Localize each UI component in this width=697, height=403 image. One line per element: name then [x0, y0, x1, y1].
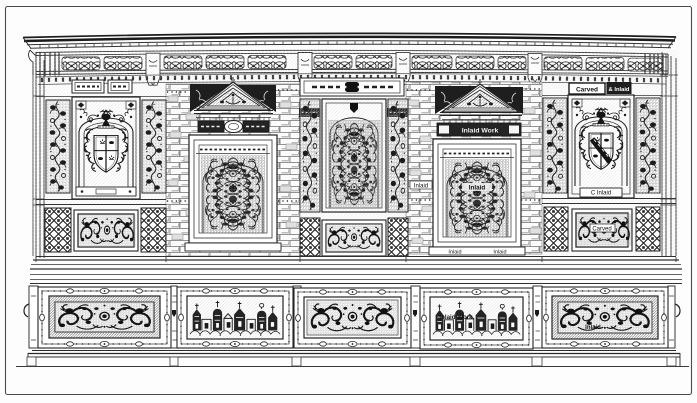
svg-text:Inlaid Work: Inlaid Work — [439, 314, 473, 321]
svg-text:Inlaid: Inlaid — [448, 250, 461, 256]
svg-text:& Inlaid: & Inlaid — [609, 87, 630, 93]
svg-text:Carved: Carved — [592, 227, 611, 233]
svg-text:Carved: Carved — [576, 87, 598, 94]
svg-text:Inlaid: Inlaid — [585, 325, 601, 331]
svg-text:Inlaid Work: Inlaid Work — [462, 128, 499, 135]
svg-text:C Inlaid: C Inlaid — [591, 191, 611, 197]
svg-text:Inlaid: Inlaid — [493, 250, 506, 256]
svg-text:Inlaid: Inlaid — [469, 185, 486, 192]
svg-text:Inlaid: Inlaid — [414, 184, 428, 190]
